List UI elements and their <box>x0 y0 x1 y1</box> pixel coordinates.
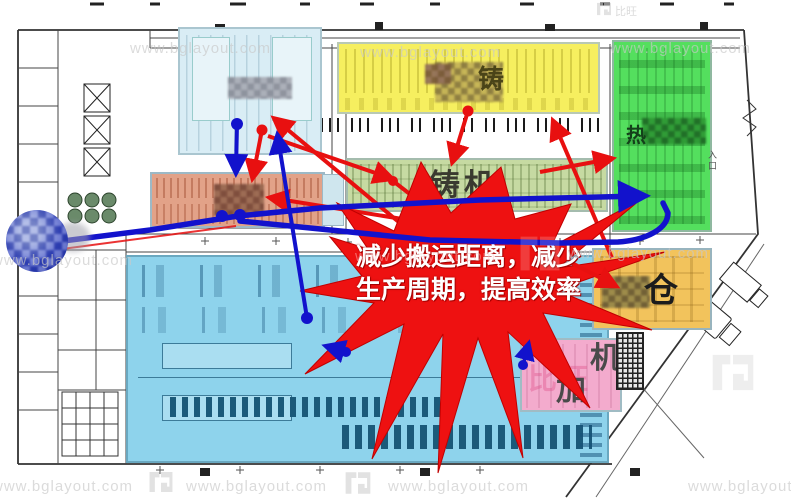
zone-cast-machines-label: 铸机 <box>430 171 498 201</box>
censored-label-mosaic <box>602 276 650 308</box>
watermark-logo-icon <box>710 352 756 393</box>
censored-label-mosaic <box>228 77 292 99</box>
zone-press-annex <box>322 174 344 226</box>
zone-die-cast-label: 铸 <box>478 66 504 92</box>
watermark-logo-icon <box>596 2 612 16</box>
zone-heat-treat: 热 <box>612 40 712 232</box>
censored-label-mosaic <box>642 118 706 144</box>
watermark-text: www.bglayout.com <box>0 252 133 269</box>
watermark-brand: 比旺 <box>615 3 637 19</box>
watermark-logo-icon <box>148 470 174 494</box>
zone-cast-machines: 铸机 <box>346 158 608 212</box>
watermark-text: www.bglayout.com <box>388 478 529 495</box>
site-entrance-label: 入口 <box>706 150 719 172</box>
dense-press-row <box>170 397 450 417</box>
zone-machining: 比旺 机 加 <box>520 338 622 412</box>
watermark-logo-icon <box>344 470 372 496</box>
zone-press-left <box>150 172 325 228</box>
watermark-text: www.bglayout.com <box>610 40 751 57</box>
red-arrow-to-cast-machines <box>453 111 468 160</box>
dense-press-row <box>342 425 592 449</box>
factory-layout-diagram: 铸 热 铸机 仓 比旺 机 加 <box>0 0 791 498</box>
boundary-break-symbol <box>743 100 756 136</box>
storage-racks <box>62 392 118 456</box>
censored-label-mosaic <box>214 184 264 216</box>
watermark-text: www.bglayout.com <box>688 478 791 495</box>
zone-heat-label: 热 <box>626 126 646 146</box>
stamping-machines-row <box>142 307 472 333</box>
zone-machining-label-2: 加 <box>556 376 586 406</box>
workshop-corridor-box <box>162 343 292 369</box>
watermark-text: www.bglayout.com <box>0 478 133 495</box>
watermark-text: www.bglayout.com <box>355 248 496 265</box>
elevator-shafts <box>84 84 110 176</box>
watermark-text: www.bglayout.com <box>568 245 709 262</box>
watermark-logo-icon <box>518 234 562 273</box>
callout-line2: 生产周期，提高效率 <box>356 274 586 307</box>
censored-label-mosaic <box>425 64 451 84</box>
machine-comb-rows <box>306 118 598 132</box>
watermark-text: www.bglayout.com <box>186 478 327 495</box>
hatch-grid-block <box>616 332 644 390</box>
zone-warehouse-label: 仓 <box>644 274 678 308</box>
round-tables <box>68 193 116 223</box>
watermark-text: www.bglayout.com <box>130 40 271 57</box>
watermark-text: www.bglayout.com <box>360 44 501 61</box>
